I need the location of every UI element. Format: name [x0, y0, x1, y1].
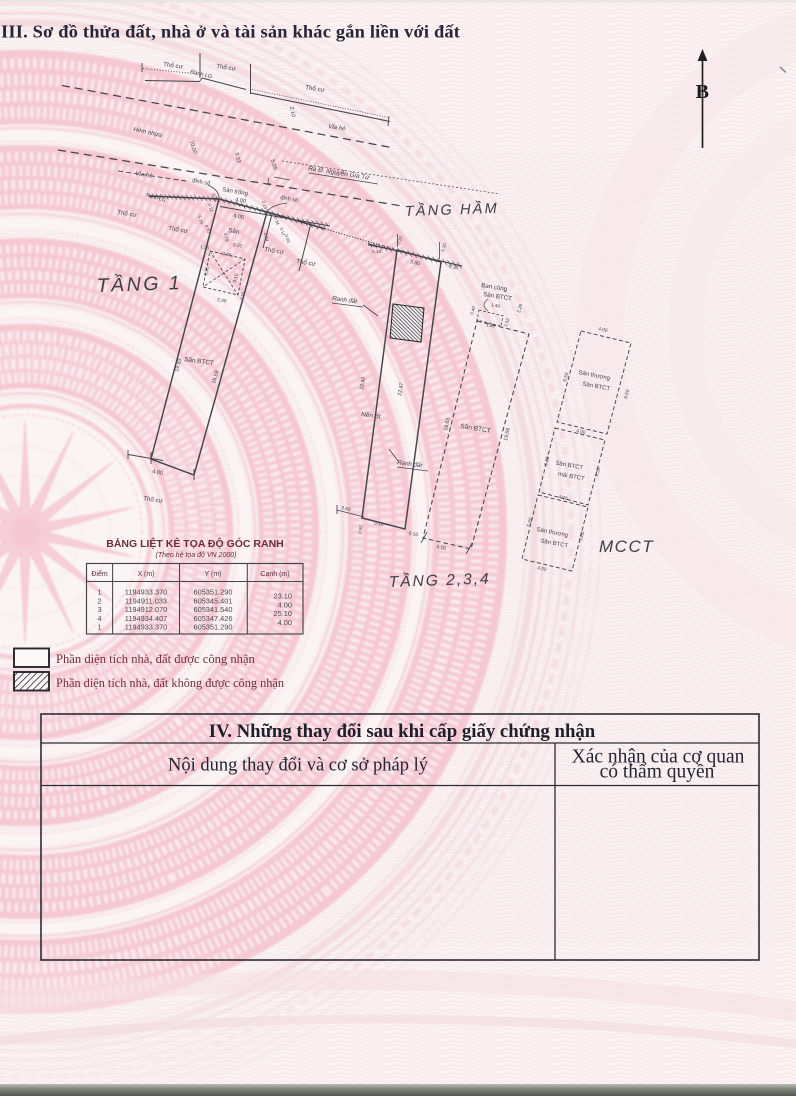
- svg-text:2: 2: [97, 596, 101, 605]
- svg-text:1194933.370: 1194933.370: [125, 623, 168, 632]
- svg-text:có thẩm quyền: có thẩm quyền: [600, 762, 715, 783]
- svg-text:605341.540: 605341.540: [193, 605, 232, 614]
- svg-text:1: 1: [97, 588, 101, 597]
- svg-text:605347.426: 605347.426: [193, 614, 232, 623]
- svg-text:Cạnh (m): Cạnh (m): [260, 571, 289, 578]
- svg-text:4: 4: [97, 614, 101, 623]
- svg-text:Phần diện tích nhà, đất không: Phần diện tích nhà, đất không được công …: [56, 676, 284, 690]
- svg-text:1194934.407: 1194934.407: [125, 614, 168, 623]
- svg-text:III. Sơ đồ thửa đất, nhà ở và: III. Sơ đồ thửa đất, nhà ở và tài sản kh…: [1, 22, 461, 42]
- svg-text:605351.290: 605351.290: [193, 623, 232, 632]
- svg-text:1194933.370: 1194933.370: [125, 588, 168, 597]
- svg-text:23.10: 23.10: [274, 592, 293, 601]
- svg-text:X (m): X (m): [137, 571, 154, 578]
- svg-text:Nội dung thay đổi và cơ sở phá: Nội dung thay đổi và cơ sở pháp lý: [168, 756, 429, 776]
- svg-text:1194911.033: 1194911.033: [125, 596, 167, 605]
- svg-text:TẦNG HẦM: TẦNG HẦM: [405, 200, 500, 220]
- svg-text:L: L: [267, 177, 271, 186]
- svg-text:Phần diện tích nhà, đất được c: Phần diện tích nhà, đất được công nhận: [56, 652, 256, 666]
- svg-text:1: 1: [97, 623, 101, 632]
- svg-text:Điểm: Điểm: [91, 570, 108, 578]
- svg-text:B: B: [696, 81, 709, 103]
- svg-text:605345.401: 605345.401: [193, 596, 232, 605]
- svg-text:25.10: 25.10: [274, 609, 293, 618]
- svg-text:IV. Những thay đổi sau khi cấp: IV. Những thay đổi sau khi cấp giấy chứn…: [209, 721, 596, 742]
- svg-text:TẦNG 1: TẦNG 1: [96, 271, 182, 297]
- svg-text:TẦNG 2,3,4: TẦNG 2,3,4: [389, 570, 491, 591]
- svg-text:4.00: 4.00: [278, 618, 292, 627]
- svg-text:605351.290: 605351.290: [193, 588, 232, 597]
- svg-text:0.10,: 0.10,: [372, 249, 383, 255]
- svg-text:4.00: 4.00: [278, 600, 292, 609]
- svg-text:BẢNG LIỆT KÊ TỌA ĐỘ GÓC RANH: BẢNG LIỆT KÊ TỌA ĐỘ GÓC RANH: [106, 537, 284, 550]
- svg-text:Y (m): Y (m): [205, 571, 222, 578]
- svg-text:MCCT: MCCT: [599, 537, 654, 556]
- svg-text:(Theo hệ tọa độ VN 2000): (Theo hệ tọa độ VN 2000): [156, 552, 237, 559]
- svg-text:1194912.070: 1194912.070: [125, 605, 168, 614]
- svg-text:3: 3: [97, 605, 101, 614]
